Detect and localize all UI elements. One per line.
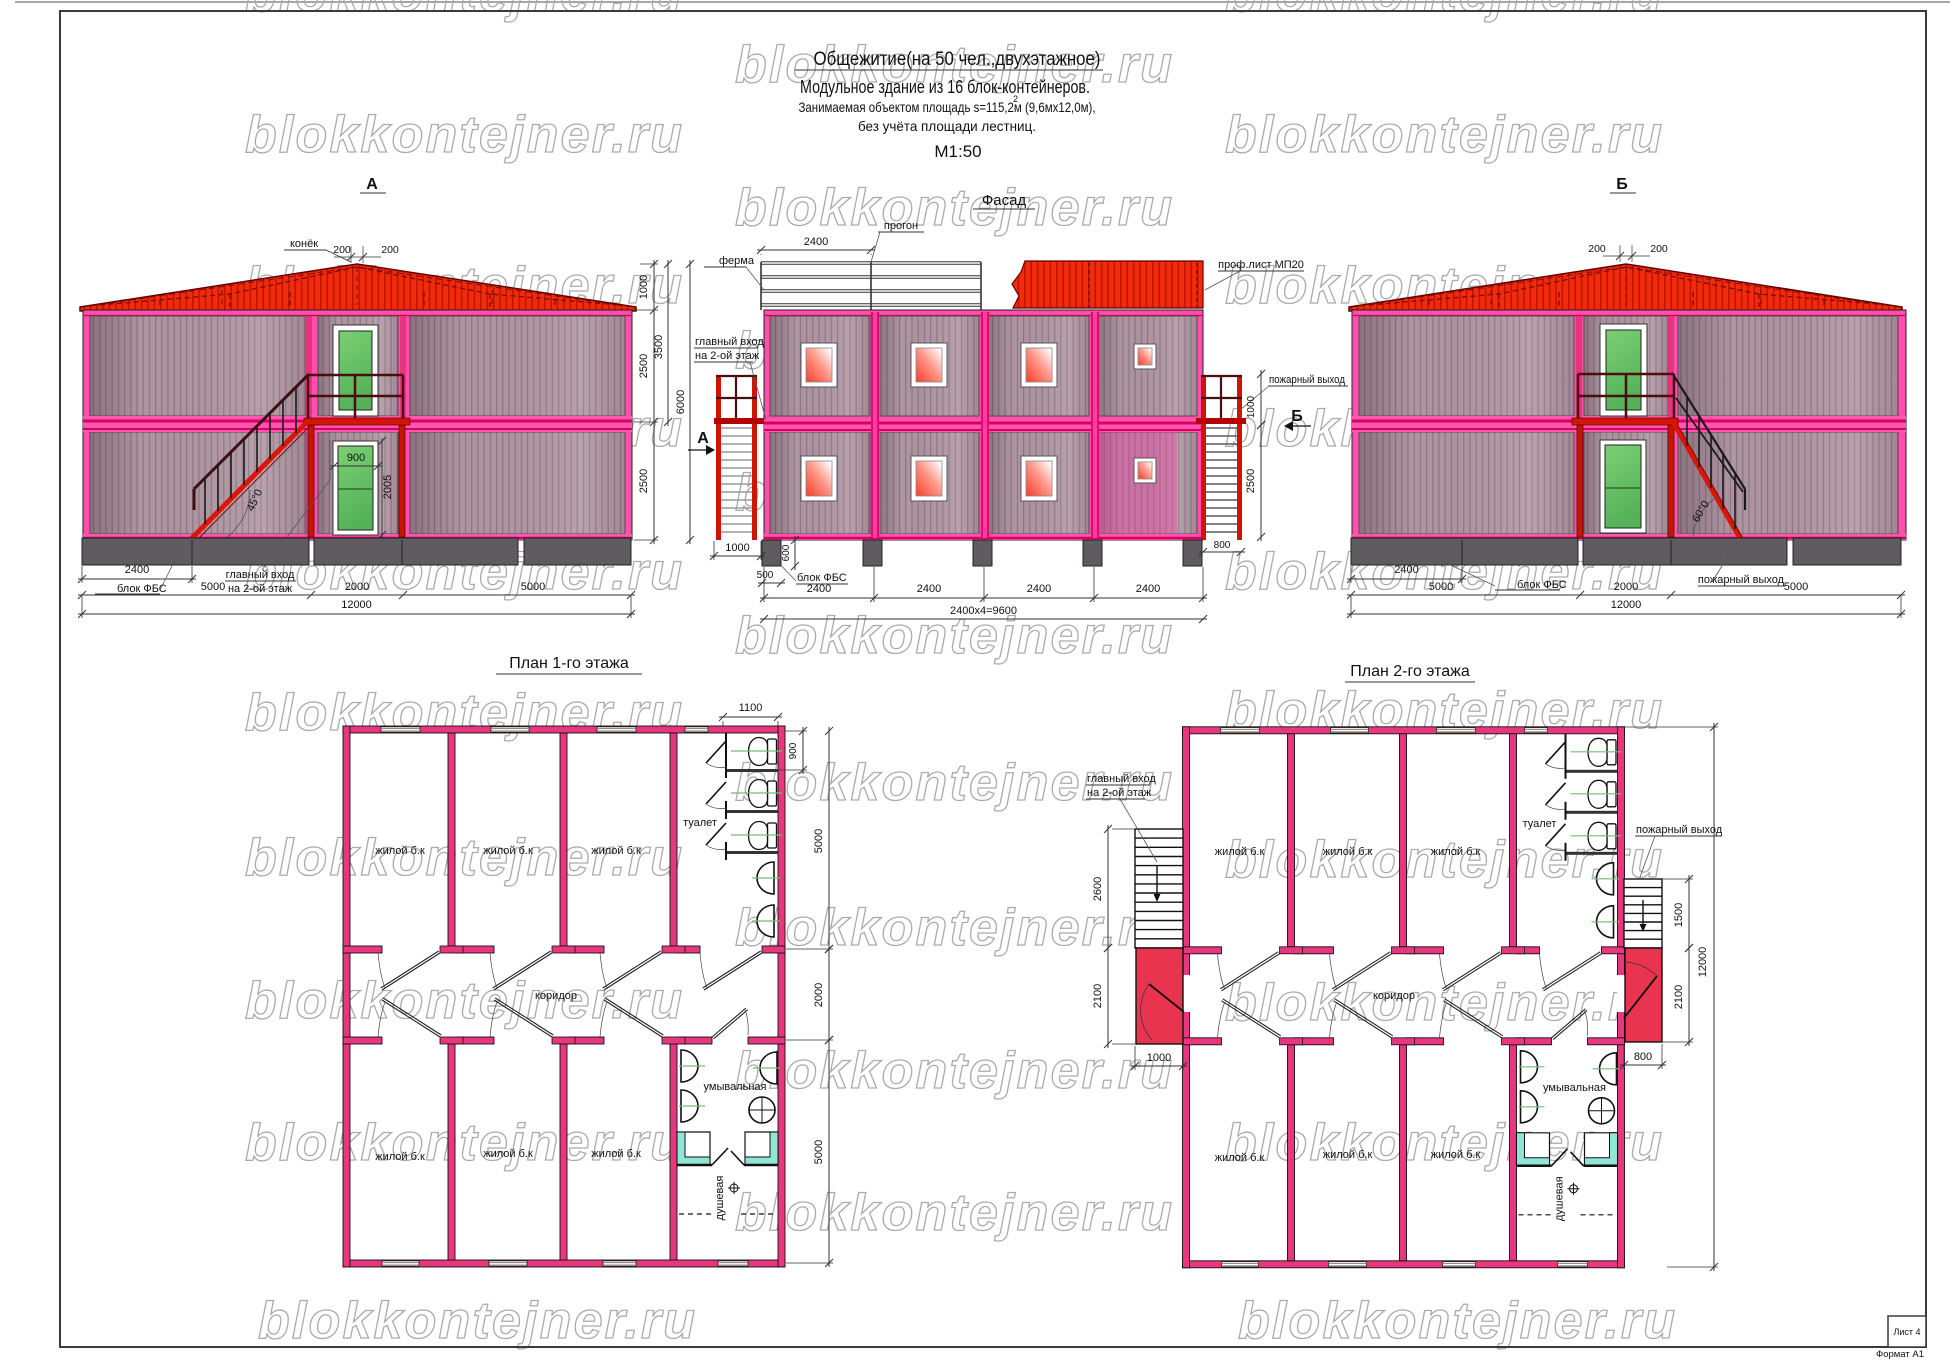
svg-text:6000: 6000: [675, 390, 687, 414]
svg-text:200: 200: [1588, 243, 1606, 255]
svg-text:Б: Б: [1616, 176, 1628, 193]
svg-text:2500: 2500: [638, 354, 650, 378]
svg-text:blokkontejner.ru: blokkontejner.ru: [245, 106, 682, 164]
svg-text:800: 800: [1214, 540, 1231, 551]
svg-text:жилой б.к: жилой б.к: [375, 845, 425, 857]
svg-text:5000: 5000: [1429, 581, 1453, 593]
svg-text:blokkontejner.ru: blokkontejner.ru: [245, 829, 682, 887]
svg-text:5000: 5000: [521, 581, 545, 593]
svg-text:План 1-го этажа: План 1-го этажа: [509, 655, 629, 672]
svg-text:Лист 4: Лист 4: [1893, 1327, 1920, 1337]
svg-text:2400: 2400: [1394, 564, 1418, 576]
svg-text:1100: 1100: [739, 702, 763, 714]
svg-text:2400: 2400: [807, 583, 831, 595]
svg-text:2400: 2400: [1027, 583, 1051, 595]
svg-text:2100: 2100: [1092, 984, 1104, 1008]
svg-text:прогон: прогон: [884, 220, 918, 232]
svg-text:1000: 1000: [638, 275, 650, 299]
svg-text:конёк: конёк: [290, 238, 318, 250]
svg-text:2005: 2005: [382, 475, 394, 499]
svg-text:1000: 1000: [1246, 395, 1257, 418]
svg-text:жилой б.к: жилой б.к: [483, 845, 533, 857]
svg-text:без учёта площади лестниц.: без учёта площади лестниц.: [858, 118, 1036, 134]
svg-text:12000: 12000: [341, 599, 372, 611]
svg-text:blokkontejner.ru: blokkontejner.ru: [735, 1042, 1172, 1100]
svg-text:2000: 2000: [1614, 581, 1638, 593]
svg-text:5000: 5000: [813, 1140, 825, 1164]
svg-text:2600: 2600: [1092, 877, 1104, 901]
svg-text:1500: 1500: [1673, 903, 1685, 927]
svg-text:12000: 12000: [1611, 599, 1642, 611]
svg-text:blokkontejner.ru: blokkontejner.ru: [735, 179, 1172, 237]
svg-text:blokkontejner.ru: blokkontejner.ru: [1238, 1292, 1675, 1350]
svg-text:2500: 2500: [638, 469, 650, 493]
svg-text:5000: 5000: [1784, 581, 1808, 593]
svg-text:600: 600: [781, 544, 792, 561]
svg-text:главный вход: главный вход: [226, 569, 295, 581]
svg-text:2400: 2400: [917, 583, 941, 595]
svg-text:2400: 2400: [125, 564, 149, 576]
svg-text:1000: 1000: [725, 542, 749, 554]
svg-text:А: А: [697, 430, 709, 447]
svg-text:пожарный выход: пожарный выход: [1698, 574, 1785, 586]
svg-text:пожарный выход: пожарный выход: [1269, 374, 1346, 386]
svg-text:blokkontejner.ru: blokkontejner.ru: [1225, 106, 1662, 164]
svg-text:3500: 3500: [653, 335, 665, 359]
svg-text:blokkontejner.ru: blokkontejner.ru: [245, 1114, 682, 1172]
svg-text:500: 500: [757, 570, 774, 581]
svg-text:200: 200: [1650, 243, 1668, 255]
svg-text:жилой б.к: жилой б.к: [591, 845, 641, 857]
svg-text:blokkontejner.ru: blokkontejner.ru: [245, 972, 682, 1030]
svg-text:коридор: коридор: [1373, 990, 1415, 1002]
svg-text:на 2-ой этаж: на 2-ой этаж: [1087, 787, 1152, 799]
svg-text:на 2-ой этаж: на 2-ой этаж: [228, 583, 293, 595]
svg-text:А: А: [366, 176, 378, 193]
svg-text:12000: 12000: [1697, 947, 1709, 978]
svg-text:2400: 2400: [804, 236, 828, 248]
svg-text:2500: 2500: [1245, 469, 1257, 493]
svg-text:blokkontejner.ru: blokkontejner.ru: [735, 899, 1172, 957]
svg-text:1000: 1000: [1147, 1052, 1171, 1064]
svg-text:душевая: душевая: [714, 1176, 726, 1221]
svg-text:ферма: ферма: [719, 255, 755, 267]
svg-text:на 2-ой этаж: на 2-ой этаж: [695, 350, 760, 362]
svg-text:жилой б.к: жилой б.к: [375, 1151, 425, 1163]
svg-text:туалет: туалет: [683, 817, 717, 829]
svg-text:2: 2: [1013, 94, 1018, 104]
svg-text:2000: 2000: [345, 581, 369, 593]
svg-text:жилой б.к: жилой б.к: [483, 1148, 533, 1160]
svg-text:главный вход: главный вход: [695, 336, 764, 348]
svg-text:5000: 5000: [813, 829, 825, 853]
svg-text:2400х4=9600: 2400х4=9600: [950, 605, 1017, 617]
svg-text:900: 900: [788, 742, 799, 759]
svg-text:2400: 2400: [1136, 583, 1160, 595]
svg-text:800: 800: [1634, 1051, 1652, 1063]
svg-text:Занимаемая объектом площадь: Занимаемая объектом площадь s=115,2м (9,…: [799, 99, 1096, 115]
svg-text:главный вход: главный вход: [1087, 773, 1156, 785]
svg-text:200: 200: [333, 244, 351, 256]
svg-text:Модульное здание из 16 блок-к: Модульное здание из 16 блок-контейнеров.: [800, 77, 1090, 97]
svg-text:5000: 5000: [201, 581, 225, 593]
svg-text:2000: 2000: [813, 983, 825, 1007]
svg-text:blokkontejner.ru: blokkontejner.ru: [258, 1292, 695, 1350]
svg-text:Фасад: Фасад: [982, 192, 1027, 209]
svg-text:М1:50: М1:50: [934, 142, 981, 161]
svg-text:умывальная: умывальная: [704, 1081, 767, 1093]
svg-text:жилой б.к: жилой б.к: [591, 1148, 641, 1160]
svg-text:blokkontejner.ru: blokkontejner.ru: [735, 1184, 1172, 1242]
svg-text:блок ФБС: блок ФБС: [117, 583, 167, 595]
svg-text:900: 900: [347, 452, 365, 464]
svg-text:План 2-го этажа: План 2-го этажа: [1350, 663, 1470, 680]
svg-text:блок ФБС: блок ФБС: [1517, 579, 1567, 591]
svg-text:Формат А1: Формат А1: [1876, 1349, 1924, 1360]
svg-text:Общежитие(на 50 чел.,двухэтажн: Общежитие(на 50 чел.,двухэтажное): [814, 49, 1101, 70]
svg-text:проф.лист МП20: проф.лист МП20: [1218, 259, 1304, 271]
svg-text:пожарный выход: пожарный выход: [1636, 824, 1723, 836]
svg-text:blokkontejner.ru: blokkontejner.ru: [1225, 974, 1662, 1032]
svg-text:200: 200: [381, 244, 399, 256]
svg-text:2100: 2100: [1673, 985, 1685, 1009]
svg-text:коридор: коридор: [535, 990, 577, 1002]
